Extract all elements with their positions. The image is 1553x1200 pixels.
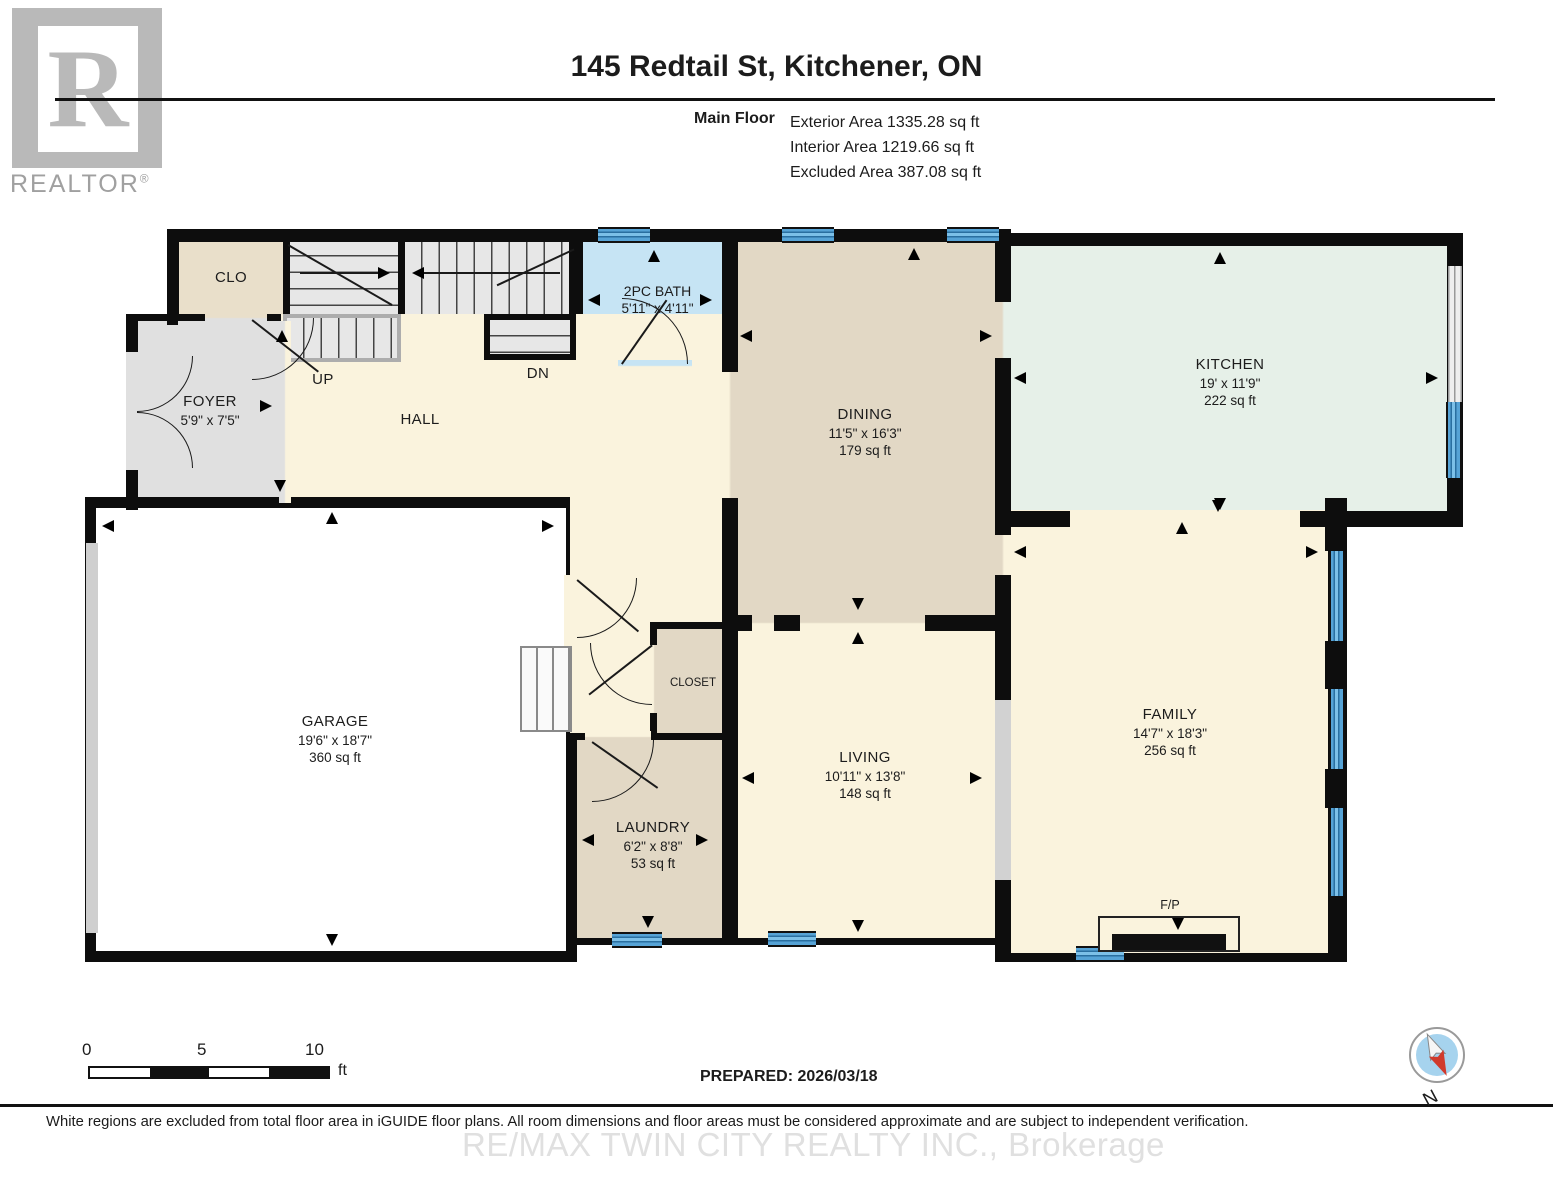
direction-arrow-icon — [980, 330, 992, 342]
opening — [752, 615, 774, 631]
floor-plan-page: R REALTOR® 145 Redtail St, Kitchener, ON… — [0, 0, 1553, 1200]
compass-north-label: N — [1420, 1086, 1442, 1112]
direction-arrow-icon — [648, 250, 660, 262]
direction-arrow-icon — [970, 772, 982, 784]
closet-label: CLOSET — [652, 672, 734, 693]
stair-direction-line — [420, 272, 560, 274]
scale-unit: ft — [338, 1062, 347, 1080]
opening — [993, 535, 1013, 575]
direction-arrow-icon — [642, 916, 654, 928]
scale-tick-0: 0 — [82, 1040, 91, 1060]
direction-arrow-icon — [1172, 918, 1184, 930]
window — [1446, 402, 1462, 478]
direction-arrow-icon — [326, 512, 338, 524]
direction-arrow-icon — [1014, 546, 1026, 558]
direction-arrow-icon — [908, 248, 920, 260]
clo-label: CLO — [172, 268, 290, 289]
wall — [1325, 641, 1347, 689]
direction-arrow-icon — [1176, 522, 1188, 534]
scale-tick-5: 5 — [197, 1040, 206, 1060]
wall — [998, 233, 1463, 246]
fireplace-label: F/P — [1150, 895, 1190, 916]
wall — [998, 511, 1070, 527]
direction-arrow-icon — [852, 598, 864, 610]
opening — [993, 302, 1013, 358]
direction-arrow-icon — [1214, 252, 1226, 264]
wall — [167, 229, 736, 242]
garage-label: GARAGE19'6" x 18'7"360 sq ft — [255, 712, 415, 767]
foyer-label: FOYER5'9" x 7'5" — [140, 392, 280, 429]
scale-bar — [88, 1066, 330, 1079]
dining-label: DINING11'5" x 16'3"179 sq ft — [795, 405, 935, 460]
wall-chase — [995, 700, 1011, 880]
stair-arrow-icon — [378, 267, 390, 279]
garage-steps — [520, 646, 572, 732]
opening — [719, 372, 741, 498]
window — [947, 227, 999, 243]
kitchen-label: KITCHEN19' x 11'9"222 sq ft — [1150, 355, 1310, 410]
direction-arrow-icon — [1212, 500, 1224, 512]
laundry-label: LAUNDRY6'2" x 8'8"53 sq ft — [580, 818, 726, 873]
garage-door — [86, 543, 98, 933]
family-label: FAMILY14'7" x 18'3"256 sq ft — [1095, 705, 1245, 760]
realtor-logo-icon: R — [12, 8, 162, 168]
hall-label: HALL — [370, 410, 470, 431]
patio-door — [1448, 266, 1462, 402]
disclaimer-text: White regions are excluded from total fl… — [46, 1114, 1248, 1130]
direction-arrow-icon — [1306, 546, 1318, 558]
window — [612, 932, 662, 948]
stairs-mid-flight — [398, 233, 576, 321]
direction-arrow-icon — [274, 480, 286, 492]
window — [598, 227, 650, 243]
stair-arrow-icon — [412, 267, 424, 279]
direction-arrow-icon — [852, 632, 864, 644]
brokerage-watermark: RE/MAX TWIN CITY REALTY INC., Brokerage — [462, 1126, 1165, 1164]
wall — [1325, 769, 1347, 808]
window — [1329, 808, 1345, 896]
interior-area: Interior Area 1219.66 sq ft — [790, 135, 981, 160]
page-title: 145 Redtail St, Kitchener, ON — [0, 50, 1553, 84]
window — [768, 931, 816, 947]
opening — [800, 615, 925, 631]
stair-direction-line — [300, 272, 380, 274]
stairs-dn-return — [484, 314, 576, 360]
window — [1329, 551, 1345, 641]
exterior-area: Exterior Area 1335.28 sq ft — [790, 110, 981, 135]
dn-label: DN — [508, 364, 568, 385]
direction-arrow-icon — [1014, 372, 1026, 384]
direction-arrow-icon — [742, 772, 754, 784]
direction-arrow-icon — [326, 934, 338, 946]
direction-arrow-icon — [276, 330, 288, 342]
direction-arrow-icon — [542, 520, 554, 532]
bath-label: 2PC BATH5'11" x 4'11" — [585, 282, 730, 318]
fireplace-firebox — [1112, 934, 1226, 950]
scale-tick-10: 10 — [305, 1040, 324, 1060]
floor-label: Main Floor — [694, 110, 775, 128]
area-summary: Exterior Area 1335.28 sq ft Interior Are… — [790, 110, 981, 185]
direction-arrow-icon — [852, 920, 864, 932]
prepared-date: PREPARED: 2026/03/18 — [700, 1068, 878, 1086]
window — [782, 227, 834, 243]
realtor-logo-panel: R — [38, 26, 138, 152]
direction-arrow-icon — [102, 520, 114, 532]
living-label: LIVING10'11" x 13'8"148 sq ft — [795, 748, 935, 803]
wall — [1325, 498, 1347, 551]
realtor-logo-wordmark: REALTOR® — [10, 170, 151, 199]
title-divider — [55, 98, 1495, 101]
window — [1329, 689, 1345, 769]
footer-divider — [0, 1104, 1553, 1107]
excluded-area: Excluded Area 387.08 sq ft — [790, 160, 981, 185]
compass-icon — [1408, 1026, 1466, 1089]
up-label: UP — [298, 370, 348, 391]
direction-arrow-icon — [1426, 372, 1438, 384]
direction-arrow-icon — [740, 330, 752, 342]
